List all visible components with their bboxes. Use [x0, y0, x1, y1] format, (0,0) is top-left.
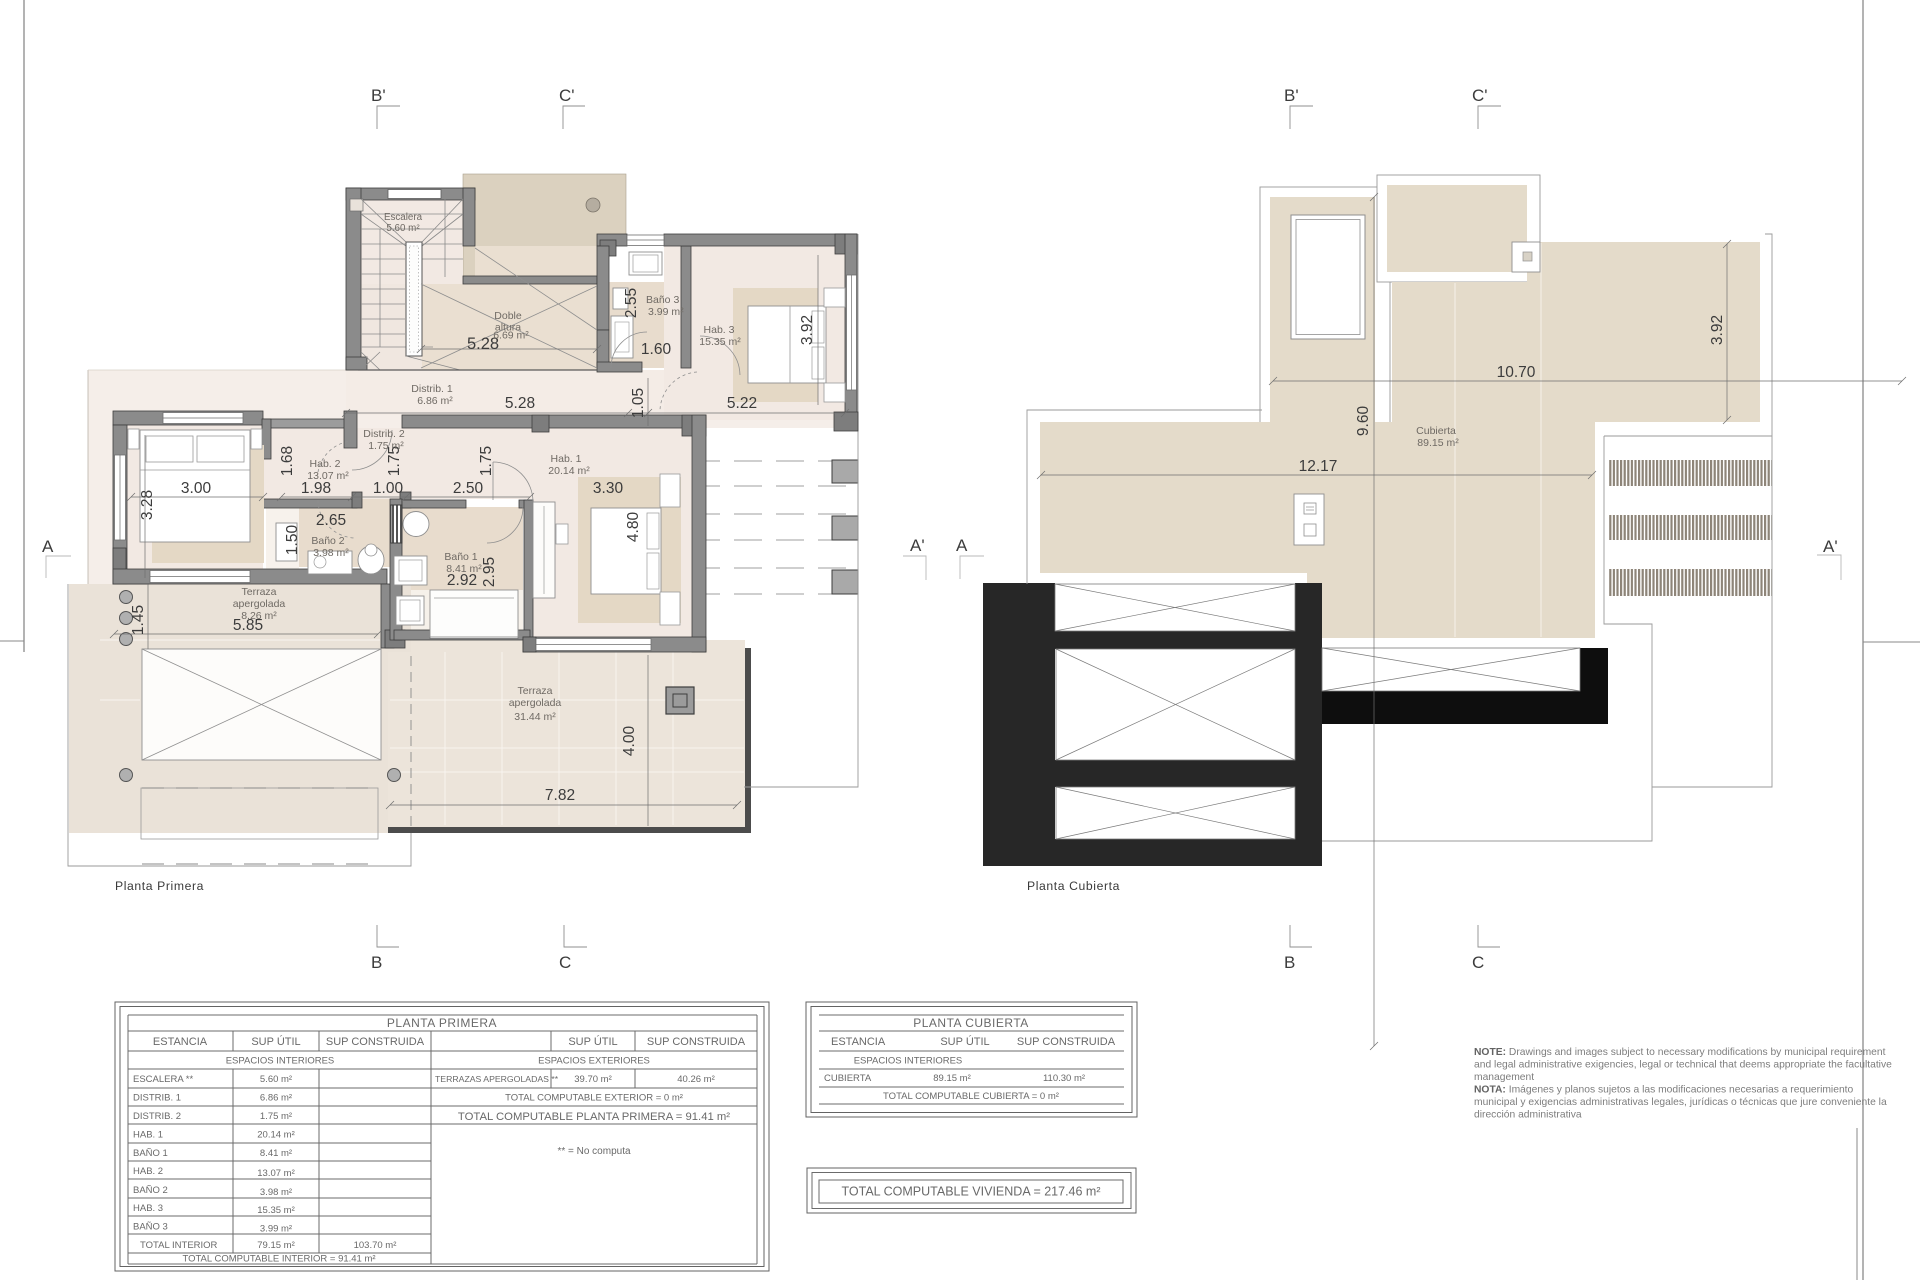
- svg-text:B': B': [371, 86, 386, 105]
- svg-text:B: B: [1284, 953, 1295, 972]
- svg-text:15.35 m²: 15.35 m²: [257, 1205, 295, 1216]
- svg-text:SUP ÚTIL: SUP ÚTIL: [940, 1035, 989, 1048]
- svg-text:2.55: 2.55: [623, 288, 640, 318]
- svg-text:apergolada: apergolada: [233, 598, 286, 610]
- svg-text:B': B': [1284, 86, 1299, 105]
- svg-text:13.07 m²: 13.07 m²: [307, 470, 349, 482]
- svg-text:Baño 1: Baño 1: [444, 551, 477, 563]
- svg-text:HAB. 2: HAB. 2: [133, 1166, 163, 1177]
- svg-text:89.15 m²: 89.15 m²: [1417, 437, 1459, 449]
- svg-text:5.28: 5.28: [505, 395, 535, 412]
- svg-text:PLANTA PRIMERA: PLANTA PRIMERA: [387, 1016, 497, 1030]
- svg-text:Distrib. 2: Distrib. 2: [363, 428, 405, 440]
- svg-text:3.30: 3.30: [593, 480, 624, 497]
- svg-text:3.92: 3.92: [799, 315, 816, 345]
- svg-text:6.86 m²: 6.86 m²: [260, 1093, 292, 1104]
- svg-text:BAÑO 2: BAÑO 2: [133, 1185, 168, 1196]
- svg-text:A': A': [910, 536, 925, 555]
- svg-text:Baño 3: Baño 3: [646, 294, 679, 306]
- svg-text:31.44 m²: 31.44 m²: [514, 711, 556, 723]
- svg-text:** = No computa: ** = No computa: [557, 1146, 631, 1157]
- svg-text:1.98: 1.98: [301, 480, 331, 497]
- svg-text:C': C': [559, 86, 575, 105]
- svg-text:12.17: 12.17: [1299, 458, 1338, 475]
- svg-text:B: B: [371, 953, 382, 972]
- svg-text:20.14 m²: 20.14 m²: [548, 465, 590, 477]
- svg-text:Hab. 1: Hab. 1: [551, 453, 582, 465]
- svg-text:103.70 m²: 103.70 m²: [354, 1240, 397, 1251]
- svg-text:3.28: 3.28: [139, 490, 156, 520]
- svg-text:1.60: 1.60: [641, 341, 672, 358]
- svg-text:SUP CONSTRUIDA: SUP CONSTRUIDA: [326, 1036, 425, 1048]
- svg-text:SUP ÚTIL: SUP ÚTIL: [568, 1035, 617, 1048]
- svg-text:TOTAL COMPUTABLE CUBIERTA = 0: TOTAL COMPUTABLE CUBIERTA = 0 m²: [883, 1091, 1059, 1102]
- svg-text:Baño 2: Baño 2: [311, 535, 344, 547]
- svg-text:110.30 m²: 110.30 m²: [1043, 1073, 1085, 1084]
- svg-text:TOTAL COMPUTABLE VIVIENDA = 21: TOTAL COMPUTABLE VIVIENDA = 217.46 m²: [842, 1185, 1101, 1199]
- svg-text:1.05: 1.05: [630, 388, 647, 418]
- svg-text:3.99 m²: 3.99 m²: [648, 306, 684, 318]
- svg-text:10.70: 10.70: [1497, 364, 1536, 381]
- svg-text:ESCALERA **: ESCALERA **: [133, 1074, 193, 1085]
- svg-text:TOTAL INTERIOR: TOTAL INTERIOR: [140, 1240, 218, 1251]
- svg-text:DISTRIB. 2: DISTRIB. 2: [133, 1111, 181, 1122]
- svg-text:ESTANCIA: ESTANCIA: [153, 1036, 208, 1048]
- svg-text:1.00: 1.00: [373, 480, 404, 497]
- svg-text:dirección administrativa: dirección administrativa: [1474, 1110, 1582, 1121]
- svg-text:TOTAL COMPUTABLE PLANTA PRIMER: TOTAL COMPUTABLE PLANTA PRIMERA = 91.41 …: [458, 1111, 730, 1123]
- svg-text:1.68: 1.68: [279, 446, 296, 476]
- svg-text:40.26 m²: 40.26 m²: [677, 1074, 715, 1085]
- svg-text:7.82: 7.82: [545, 787, 575, 804]
- svg-text:6.86 m²: 6.86 m²: [417, 395, 453, 407]
- svg-text:1.75: 1.75: [478, 446, 495, 476]
- svg-text:C': C': [1472, 86, 1488, 105]
- svg-text:2.95: 2.95: [481, 557, 498, 587]
- svg-text:Terraza: Terraza: [517, 685, 552, 697]
- svg-text:DISTRIB. 1: DISTRIB. 1: [133, 1093, 181, 1104]
- svg-text:8.41 m²: 8.41 m²: [260, 1148, 292, 1159]
- svg-text:3.92: 3.92: [1709, 315, 1726, 345]
- svg-text:6.69 m²: 6.69 m²: [493, 330, 529, 342]
- svg-text:SUP ÚTIL: SUP ÚTIL: [251, 1035, 300, 1048]
- svg-text:3.00: 3.00: [181, 480, 212, 497]
- svg-text:4.80: 4.80: [625, 512, 642, 543]
- svg-text:and legal administrative exige: and legal administrative exigencies, leg…: [1474, 1060, 1892, 1071]
- svg-text:TOTAL COMPUTABLE EXTERIOR = 0: TOTAL COMPUTABLE EXTERIOR = 0 m²: [505, 1093, 683, 1104]
- svg-text:Escalera: Escalera: [384, 212, 423, 223]
- svg-text:A: A: [42, 537, 54, 556]
- svg-text:municipal y exigencias adminis: municipal y exigencias administrativas l…: [1474, 1097, 1887, 1108]
- svg-text:apergolada: apergolada: [509, 697, 562, 709]
- svg-text:79.15 m²: 79.15 m²: [257, 1240, 295, 1251]
- svg-text:A: A: [956, 536, 968, 555]
- svg-text:4.00: 4.00: [621, 726, 638, 757]
- svg-text:3.98 m²: 3.98 m²: [313, 547, 349, 559]
- svg-text:TOTAL COMPUTABLE INTERIOR = 91: TOTAL COMPUTABLE INTERIOR = 91.41 m²: [182, 1254, 375, 1265]
- svg-text:NOTA: Imágenes y planos sujeto: NOTA: Imágenes y planos sujetos a las mo…: [1474, 1085, 1854, 1096]
- svg-text:BAÑO 3: BAÑO 3: [133, 1222, 168, 1233]
- svg-text:Doble: Doble: [494, 310, 522, 322]
- svg-text:NOTE: Drawings and images subj: NOTE: Drawings and images subject to nec…: [1474, 1047, 1886, 1058]
- svg-text:15.35 m²: 15.35 m²: [699, 336, 741, 348]
- svg-text:39.70 m²: 39.70 m²: [574, 1074, 612, 1085]
- svg-text:5.22: 5.22: [727, 395, 757, 412]
- svg-text:management: management: [1474, 1072, 1534, 1083]
- svg-text:Cubierta: Cubierta: [1416, 425, 1456, 437]
- svg-text:Distrib. 1: Distrib. 1: [411, 383, 453, 395]
- svg-text:2.65: 2.65: [316, 512, 346, 529]
- svg-text:CUBIERTA: CUBIERTA: [824, 1073, 872, 1084]
- svg-text:TERRAZAS APERGOLADAS **: TERRAZAS APERGOLADAS **: [435, 1074, 559, 1084]
- svg-text:8.41 m²: 8.41 m²: [446, 563, 482, 575]
- svg-text:C: C: [559, 953, 571, 972]
- svg-text:13.07 m²: 13.07 m²: [257, 1168, 295, 1179]
- svg-text:Hab. 2: Hab. 2: [310, 458, 341, 470]
- svg-text:HAB. 1: HAB. 1: [133, 1130, 163, 1141]
- svg-text:1.75 m²: 1.75 m²: [260, 1111, 292, 1122]
- svg-text:C: C: [1472, 953, 1484, 972]
- svg-text:89.15 m²: 89.15 m²: [933, 1073, 971, 1084]
- svg-text:3.99 m²: 3.99 m²: [260, 1224, 292, 1235]
- svg-text:Planta Primera: Planta Primera: [115, 879, 204, 893]
- svg-text:Hab. 3: Hab. 3: [704, 324, 735, 336]
- svg-text:SUP CONSTRUIDA: SUP CONSTRUIDA: [1017, 1036, 1116, 1048]
- svg-text:1.50: 1.50: [284, 525, 301, 556]
- svg-text:2.50: 2.50: [453, 480, 484, 497]
- svg-text:ESPACIOS INTERIORES: ESPACIOS INTERIORES: [854, 1056, 963, 1067]
- svg-text:HAB. 3: HAB. 3: [133, 1203, 163, 1214]
- svg-text:A': A': [1823, 537, 1838, 556]
- svg-text:3.98 m²: 3.98 m²: [260, 1187, 292, 1198]
- svg-text:Terraza: Terraza: [241, 586, 276, 598]
- svg-text:8.26 m²: 8.26 m²: [241, 610, 277, 622]
- svg-text:5.60 m²: 5.60 m²: [260, 1074, 292, 1085]
- svg-text:1.45: 1.45: [130, 605, 147, 635]
- svg-text:SUP CONSTRUIDA: SUP CONSTRUIDA: [647, 1036, 746, 1048]
- svg-text:BAÑO 1: BAÑO 1: [133, 1148, 168, 1159]
- svg-text:20.14 m²: 20.14 m²: [257, 1130, 295, 1141]
- svg-text:Planta Cubierta: Planta Cubierta: [1027, 879, 1120, 893]
- svg-text:9.60: 9.60: [1355, 406, 1372, 437]
- svg-text:1.75 m²: 1.75 m²: [368, 440, 404, 452]
- svg-text:ESPACIOS INTERIORES: ESPACIOS INTERIORES: [226, 1056, 335, 1067]
- svg-text:ESTANCIA: ESTANCIA: [831, 1036, 886, 1048]
- svg-text:ESPACIOS EXTERIORES: ESPACIOS EXTERIORES: [538, 1056, 650, 1067]
- svg-text:5.60 m²: 5.60 m²: [386, 223, 420, 234]
- svg-text:PLANTA CUBIERTA: PLANTA CUBIERTA: [913, 1016, 1029, 1030]
